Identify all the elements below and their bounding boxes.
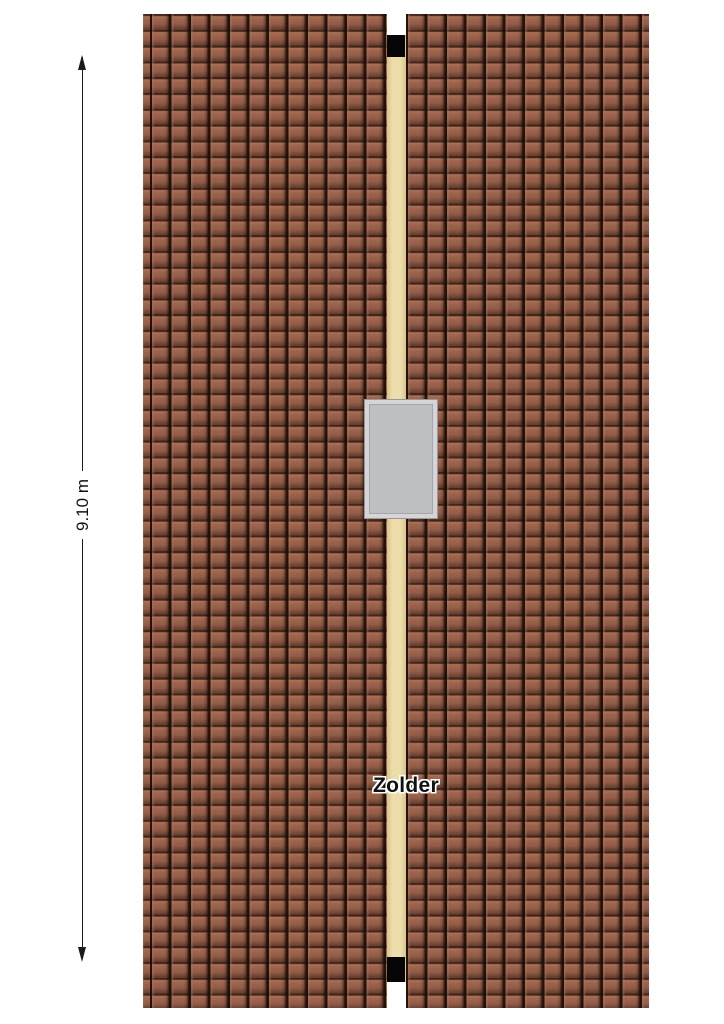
- floorplan-canvas: Zolder 9.10 m: [0, 0, 724, 1024]
- dimension-label: 9.10 m: [71, 471, 95, 539]
- arrow-up-icon: [78, 55, 86, 70]
- arrow-down-icon: [78, 947, 86, 962]
- chimney-cap-bottom: [387, 957, 405, 982]
- skylight: [364, 399, 438, 519]
- room-label: Zolder: [373, 774, 439, 798]
- skylight-glass: [369, 404, 433, 514]
- roof-right-panel: [406, 14, 649, 1008]
- chimney-cap-top: [387, 35, 405, 57]
- roof-left-panel: [143, 14, 387, 1008]
